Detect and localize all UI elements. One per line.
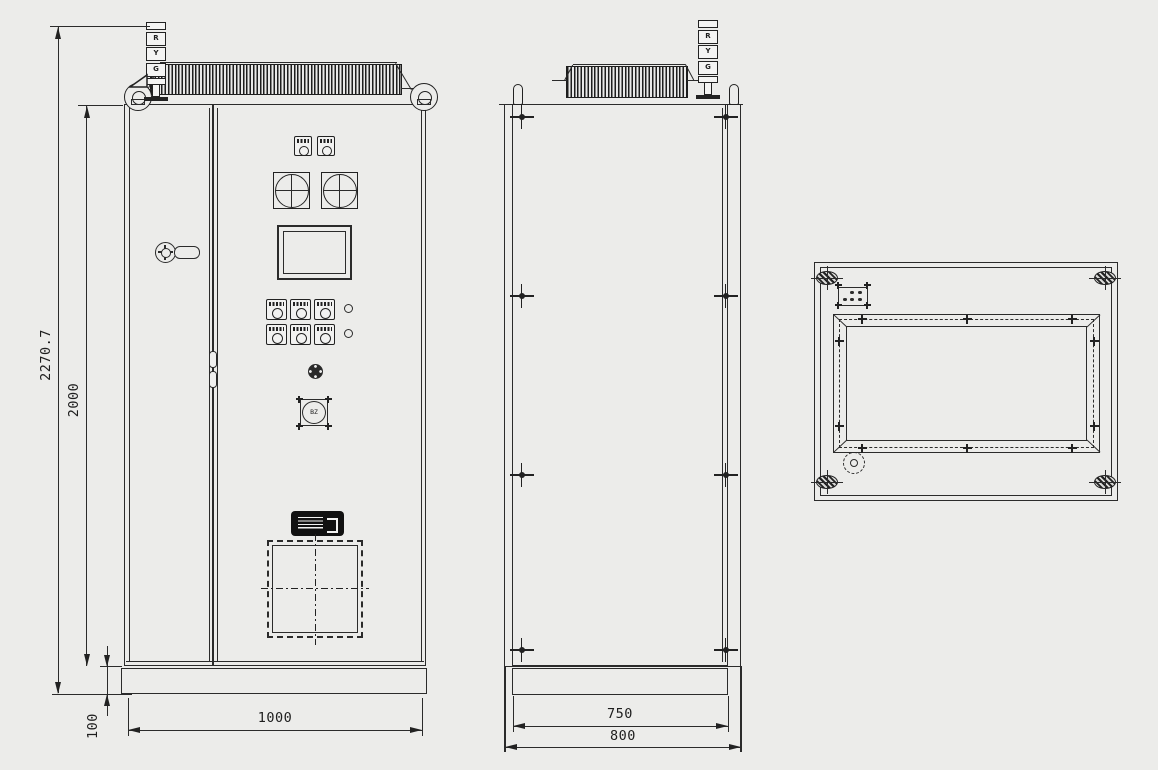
dimension-line xyxy=(505,747,741,748)
dim-arrow xyxy=(410,727,422,733)
dim-arrow xyxy=(128,727,140,733)
dim-arrow xyxy=(84,654,90,666)
extension-line xyxy=(741,666,742,752)
dimension-text: 100 xyxy=(84,696,102,756)
dim-arrow xyxy=(716,723,728,729)
dimension-text: 750 xyxy=(580,705,660,723)
dim-arrow xyxy=(104,655,110,667)
dim-arrow xyxy=(104,694,110,706)
dimension-line xyxy=(58,27,59,693)
dim-arrow xyxy=(55,682,61,694)
dimension-text: 2270.7 xyxy=(37,315,55,395)
dim-arrow xyxy=(84,106,90,118)
dimension-text: 2000 xyxy=(65,360,83,440)
extension-line xyxy=(50,26,150,27)
dimension-line xyxy=(86,106,87,666)
drawing-canvas: R Y G xyxy=(0,0,1158,770)
dimensions: 2270.7 2000 100 1000 750 800 xyxy=(0,0,1158,770)
dimension-text: 800 xyxy=(583,727,663,745)
dimension-line xyxy=(128,730,422,731)
dim-arrow xyxy=(513,723,525,729)
dim-arrow xyxy=(729,744,741,750)
dim-arrow xyxy=(505,744,517,750)
extension-line xyxy=(52,694,132,695)
extension-line xyxy=(505,666,506,752)
dimension-text: 1000 xyxy=(235,709,315,727)
dim-arrow xyxy=(55,27,61,39)
